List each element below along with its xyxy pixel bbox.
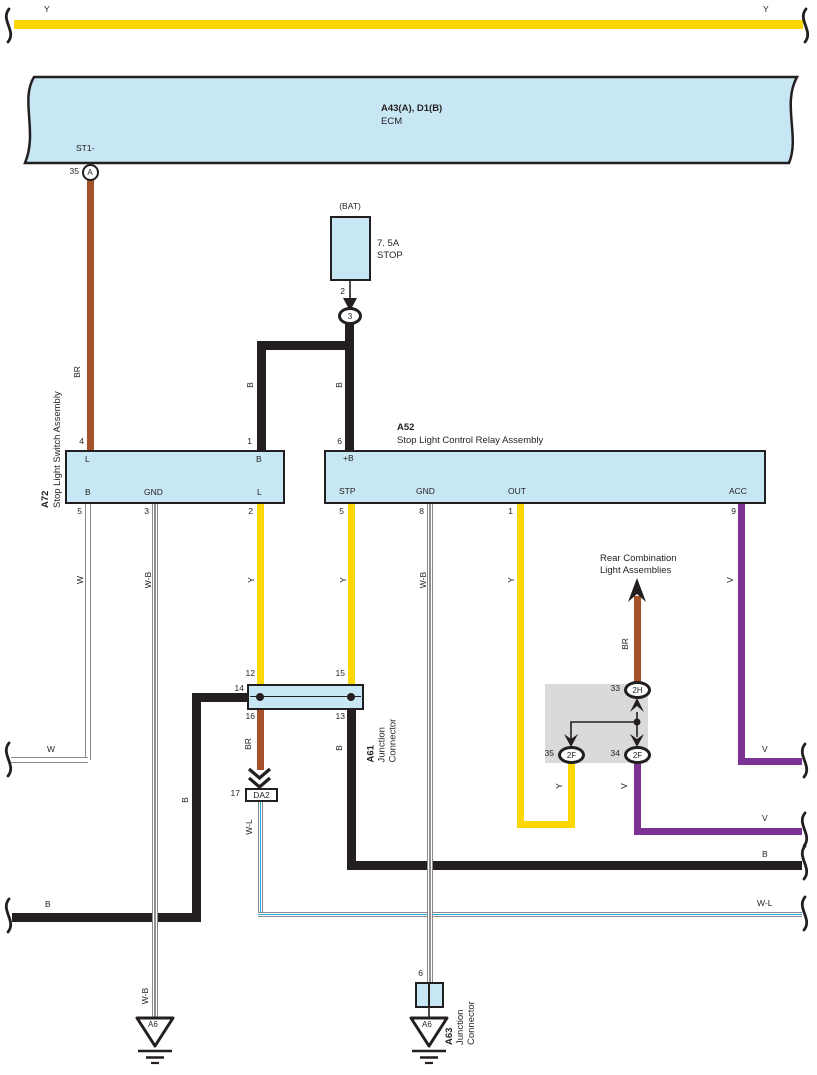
a72-code: A72 [40, 388, 52, 508]
terminal-label: +B [343, 454, 354, 464]
fuse-name: STOP [377, 249, 403, 262]
pin-number: 3 [136, 507, 149, 516]
a63-title: A63 Junction Connector [444, 980, 477, 1045]
wire-label: B [762, 850, 768, 860]
wire-yellow-a72-to-a61 [257, 504, 264, 684]
wire-white-blue-h [258, 912, 802, 917]
pin-number: 35 [541, 749, 554, 758]
pin-number: 14 [231, 684, 244, 693]
fuse-bus-label: (BAT) [325, 202, 375, 212]
node-3-label: 3 [348, 312, 352, 321]
wire-purple-acc-v [738, 504, 745, 765]
wire-brown-ecm-to-a72 [87, 180, 94, 450]
a63-name-line1: Junction [455, 980, 466, 1045]
wire-label: V [724, 550, 736, 610]
wire-purple-acc-h [738, 758, 802, 765]
wire-label: Y [245, 550, 257, 610]
wire-yellow-top [14, 20, 803, 29]
pin-number: 8 [411, 507, 424, 516]
pin-number: 5 [69, 507, 82, 516]
wire-black-a61-pin14-h [196, 693, 247, 702]
ground-label-right: A6 [422, 1020, 432, 1029]
a52-name: Stop Light Control Relay Assembly [397, 434, 543, 447]
pin-number: 2 [240, 507, 253, 516]
pin-number: 6 [410, 969, 423, 978]
a72-name: Stop Light Switch Assembly [52, 388, 64, 508]
pin-number: 6 [329, 437, 342, 446]
ecm-pin-number: 35 [66, 167, 79, 176]
ecm-connector-a: A [82, 164, 99, 181]
pin-number: 4 [71, 437, 84, 446]
wire-black-a61-pin13-v [347, 710, 356, 870]
a52-code: A52 [397, 421, 414, 434]
wire-purple-2f-h [634, 828, 802, 835]
wire-label: B [244, 355, 256, 415]
wire-label: BR [619, 614, 631, 674]
wire-label: W-L [243, 797, 255, 857]
pin-number: 1 [239, 437, 252, 446]
wire-label: V [762, 745, 768, 755]
pin-number: 34 [607, 749, 620, 758]
rear-lights-title-line2: Light Assemblies [600, 564, 671, 577]
wire-label: B [333, 355, 345, 415]
pin-number: 1 [500, 507, 513, 516]
pin-number: 13 [332, 712, 345, 721]
wire-brown-a61-to-da2 [257, 710, 264, 770]
wire-label: W-B [417, 550, 429, 610]
wire-black-bottom-left-h [12, 913, 201, 922]
a72-title: A72 Stop Light Switch Assembly [40, 388, 64, 508]
a61-bus-line [250, 696, 361, 698]
a61-name-line1: Junction [377, 684, 388, 762]
ground-label-left: A6 [148, 1020, 158, 1029]
terminal-label: ACC [729, 487, 747, 497]
pin-number: 9 [723, 507, 736, 516]
a63-code: A63 [444, 980, 455, 1045]
wire-black-left-v [192, 693, 201, 923]
wire-label: W-B [142, 550, 154, 610]
wire-label: W [74, 550, 86, 610]
wire-label: W-L [757, 899, 772, 909]
wire-white-a72-v [85, 504, 91, 760]
ecm-box [25, 77, 797, 163]
wire-white-a72-h [11, 757, 88, 763]
terminal-label: B [256, 455, 262, 465]
terminal-label: GND [144, 488, 163, 498]
pin-number: 17 [227, 789, 240, 798]
a61-name-line2: Connector [388, 684, 399, 762]
a61-title: A61 Junction Connector [366, 684, 399, 762]
wire-yellow-up-to-2f [568, 764, 575, 828]
ecm-code: A43(A), D1(B) [381, 102, 442, 115]
wire-label: Y [337, 550, 349, 610]
a61-dot-right [347, 693, 355, 701]
wire-label: B [179, 770, 191, 830]
wire-black-branch-h [257, 341, 354, 350]
da2-label: DA2 [253, 790, 270, 800]
wire-label: Y [763, 5, 769, 15]
terminal-label: L [85, 455, 90, 465]
ecm-connector-a-label: A [87, 168, 92, 177]
a63-bus-line [428, 982, 430, 1008]
a63-name-line2: Connector [466, 980, 477, 1045]
connector-2f-left-label: 2F [567, 751, 576, 760]
connector-2f-right-label: 2F [633, 751, 642, 760]
a61-code: A61 [366, 684, 377, 762]
a72-box [65, 450, 285, 504]
wire-label: Y [505, 550, 517, 610]
wire-label: B [45, 900, 51, 910]
pin-number: 5 [331, 507, 344, 516]
wire-label: BR [242, 714, 254, 774]
wire-label: V [618, 756, 630, 816]
ecm-terminal-label: ST1- [76, 144, 94, 154]
wire-white-blue-da2-v [258, 801, 263, 916]
wire-yellow-out-v [517, 504, 524, 828]
connector-2h-label: 2H [632, 686, 642, 695]
fuse-box [330, 216, 371, 281]
pin-number: 15 [332, 669, 345, 678]
terminal-label: GND [416, 487, 435, 497]
wire-label: Y [44, 5, 50, 15]
wire-yellow-out-h [517, 821, 575, 828]
node-3-connector: 3 [338, 307, 362, 325]
terminal-label: L [257, 488, 262, 498]
connector-2h: 2H [624, 681, 651, 699]
wire-purple-2f-v [634, 763, 641, 835]
wire-label: Y [553, 756, 565, 816]
terminal-label: OUT [508, 487, 526, 497]
fuse-pin-number: 2 [332, 287, 345, 296]
ground-symbol-right [411, 1008, 447, 1063]
wire-black-right-h [347, 861, 802, 870]
wire-label: W [47, 745, 55, 755]
a52-box [324, 450, 766, 504]
wire-label: V [762, 814, 768, 824]
pin-number: 16 [242, 712, 255, 721]
wiring-diagram: DA2 A 3 2H 2F 2F Y Y A43(A), D1(B) ECM S… [0, 0, 817, 1075]
pin-number: 33 [607, 684, 620, 693]
wire-black-branch-to-a72 [257, 341, 266, 450]
wire-label: W-B [139, 966, 151, 1026]
ecm-name: ECM [381, 115, 402, 128]
terminal-label: B [85, 488, 91, 498]
pin-number: 12 [242, 669, 255, 678]
wire-brown-to-rear-lights [634, 596, 641, 683]
wire-label: B [333, 718, 345, 778]
wire-label: BR [71, 342, 83, 402]
terminal-label: STP [339, 487, 356, 497]
a61-dot-left [256, 693, 264, 701]
